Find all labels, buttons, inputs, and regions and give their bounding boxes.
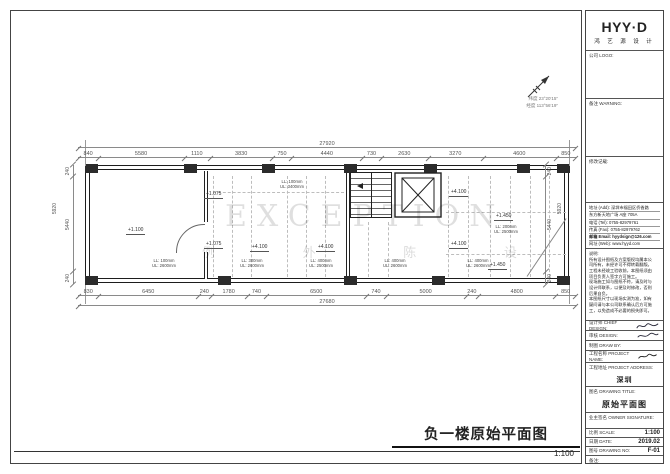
drawing-sheet: EXCEPTION 例 外 陈 设 纬度 23°20′15″ 经度 113°56… bbox=[0, 0, 670, 474]
drawing-no-cell: 图号 DRAWING NO: F-01 bbox=[586, 447, 663, 456]
beam-label: LL: 300mmUL: 2600mm bbox=[240, 258, 264, 269]
project-address-cell: 工程地址 PROJECT ADDRESS: 深圳 bbox=[586, 363, 663, 387]
dimension-segment: 2630 bbox=[381, 152, 428, 158]
dimension-segment: 740 bbox=[366, 290, 385, 296]
beam-label: LL: 400mmUL: 2600mm bbox=[383, 258, 407, 269]
dimension-segment: 730 bbox=[362, 152, 381, 158]
dimension-segment: 240 bbox=[64, 272, 73, 284]
beam-label: LL: 400mmUL: 2500mm bbox=[309, 258, 333, 269]
dimension-segment: 5440 bbox=[546, 177, 555, 272]
dimension-segment: 5580 bbox=[98, 152, 184, 158]
exterior-wall bbox=[85, 165, 90, 281]
dimension-segment: 240 bbox=[198, 290, 210, 296]
owner-signature-cell: 业主签名 OWNER SIGNATURE: bbox=[586, 413, 663, 429]
dimension-segment: 740 bbox=[247, 290, 266, 296]
level-mark: +1.450 bbox=[494, 214, 513, 221]
column bbox=[85, 276, 98, 285]
dimension-label: 27920 bbox=[78, 142, 576, 148]
level-mark: +1.075 bbox=[204, 242, 223, 249]
dimension-segment: 240 bbox=[466, 290, 478, 296]
logo-cell: HYY·D 鸿 艺 源 设 计 bbox=[586, 11, 663, 51]
drawing-title-cell: 图名 DRAWING TITLE: 原始平面图 bbox=[586, 387, 663, 413]
revision-cell: 修改记载: bbox=[586, 157, 663, 203]
column bbox=[344, 276, 357, 285]
dimension-segment: 6450 bbox=[98, 290, 198, 296]
level-mark: +4.100 bbox=[250, 245, 269, 252]
dimension-left-segments: 2405440240 bbox=[64, 165, 74, 284]
dimension-segment: 3830 bbox=[210, 152, 273, 158]
title-block-panel: HYY·D 鸿 艺 源 设 计 公司 LOGO: 备注 WARNING: 修改记… bbox=[585, 10, 664, 464]
sheet-title: 负一楼原始平面图 bbox=[392, 423, 580, 448]
dimension-segment: 4800 bbox=[478, 290, 555, 296]
column bbox=[85, 164, 98, 173]
coordinate-annotation: 纬度 23°20′15″ 经度 113°56′19″ bbox=[506, 96, 558, 110]
dimension-segment: 240 bbox=[546, 272, 555, 284]
beam-label: LL: 200mmUL: 2500mm bbox=[494, 224, 518, 235]
drawing-no-value: F-01 bbox=[648, 448, 660, 454]
dimension-segment: 6500 bbox=[266, 290, 366, 296]
company-logo-sub: 鸿 艺 源 设 计 bbox=[589, 37, 660, 45]
level-mark: +4.100 bbox=[449, 190, 468, 197]
level-mark: +4.100 bbox=[449, 242, 468, 249]
chief-design-signature bbox=[635, 321, 660, 331]
dimension-segment: 4440 bbox=[291, 152, 362, 158]
chief-design-cell: 设计师 CHIEF DESIGN: bbox=[586, 321, 663, 331]
title-rule-line bbox=[14, 451, 580, 452]
review-signature bbox=[636, 331, 660, 340]
drawing-frame bbox=[10, 10, 582, 464]
dimension-segment: 4600 bbox=[483, 152, 556, 158]
dimension-segment: 830 bbox=[78, 290, 98, 296]
column bbox=[557, 276, 570, 285]
latitude-text: 纬度 23°20′15″ bbox=[506, 96, 558, 103]
dimension-left-total: 5920 bbox=[52, 203, 58, 214]
longitude-text: 经度 113°56′19″ bbox=[506, 103, 558, 110]
dimension-segment: 5440 bbox=[64, 177, 73, 272]
dimension-right-total: 5920 bbox=[557, 203, 563, 214]
column bbox=[432, 276, 445, 285]
level-mark: +1.075 bbox=[204, 192, 223, 199]
dimension-label: 27680 bbox=[78, 300, 576, 306]
draw-by-cell: 制图 DRAW BY: bbox=[586, 341, 663, 351]
review-cell: 审核 DESIGN: bbox=[586, 331, 663, 341]
scale-cell: 比例 SCALE: 1:100 bbox=[586, 429, 663, 438]
level-mark: +4.100 bbox=[316, 245, 335, 252]
dimension-segment: 1110 bbox=[184, 152, 210, 158]
dimension-segment: 750 bbox=[272, 152, 291, 158]
grid-dashed-line bbox=[213, 192, 344, 193]
beam-label: LL: 100mmUL: 2600mm bbox=[152, 258, 176, 269]
remark-cell: 备注: bbox=[586, 456, 663, 463]
dimension-top-segments: 8405580111038307504440730263032704600850 bbox=[78, 149, 576, 158]
sheet-title-block: 负一楼原始平面图 1:100 bbox=[392, 423, 580, 458]
column bbox=[262, 164, 275, 173]
dimension-segment: 850 bbox=[555, 290, 576, 296]
scale-value: 1:100 bbox=[645, 430, 660, 436]
warning-cell: 备注 WARNING: bbox=[586, 99, 663, 157]
dimension-bottom-segments: 83064502401780740650074050002404800850 bbox=[78, 287, 576, 296]
beam-label: LL: 100mmUL: 3400mm bbox=[280, 179, 304, 190]
dimension-top-total: 27920 bbox=[78, 139, 576, 148]
project-address-value: 深圳 bbox=[589, 375, 660, 385]
watermark-text: EXCEPTION bbox=[225, 199, 505, 234]
door-swing-arc bbox=[176, 224, 205, 253]
date-value: 2019.02 bbox=[638, 439, 660, 445]
company-logo-cell: 公司 LOGO: bbox=[586, 51, 663, 99]
exterior-wall bbox=[85, 278, 570, 283]
column bbox=[218, 276, 231, 285]
dimension-segment: 850 bbox=[556, 152, 576, 158]
exterior-wall bbox=[85, 165, 570, 170]
dimension-segment: 5000 bbox=[386, 290, 466, 296]
contact-cell: 地址 (Add): 深圳市福田区侨香路 东方新天地广场 A座 705A 电话 (… bbox=[586, 203, 663, 249]
column bbox=[184, 164, 197, 173]
web-line: 网址 (Web): www.hyyd.com bbox=[589, 241, 660, 247]
dimension-bottom-total: 27680 bbox=[78, 297, 576, 306]
column bbox=[517, 164, 530, 173]
beam-label: LL: 400mmUL: 2600mm bbox=[466, 258, 490, 269]
project-name-cell: 工程名称 PROJECT NAME: bbox=[586, 351, 663, 363]
exterior-wall bbox=[564, 165, 569, 281]
level-mark: +1.450 bbox=[488, 263, 507, 270]
date-cell: 日期 DATE: 2019.02 bbox=[586, 438, 663, 447]
dimension-right-segments: 2405440240 bbox=[545, 165, 555, 284]
dimension-segment: 1780 bbox=[211, 290, 247, 296]
address-line: 东方新天地广场 A座 705A bbox=[589, 212, 660, 219]
dimension-segment: 840 bbox=[78, 152, 98, 158]
project-name-signature bbox=[637, 351, 660, 362]
notes-cell: 说明: 所有设计图纸及方案版权均属本公 司所有，未经许可不得转载翻版。 工程未经… bbox=[586, 249, 663, 321]
level-mark: +1.100 bbox=[126, 228, 145, 235]
stair-direction-arrow-icon bbox=[357, 183, 363, 189]
drawing-title-value: 原始平面图 bbox=[589, 399, 660, 410]
dimension-segment: 3270 bbox=[428, 152, 483, 158]
tel-line: 电话 (Tel): 0755-82979761 bbox=[589, 220, 660, 227]
grid-dashed-line bbox=[530, 176, 531, 277]
company-logo: HYY·D bbox=[589, 19, 660, 35]
